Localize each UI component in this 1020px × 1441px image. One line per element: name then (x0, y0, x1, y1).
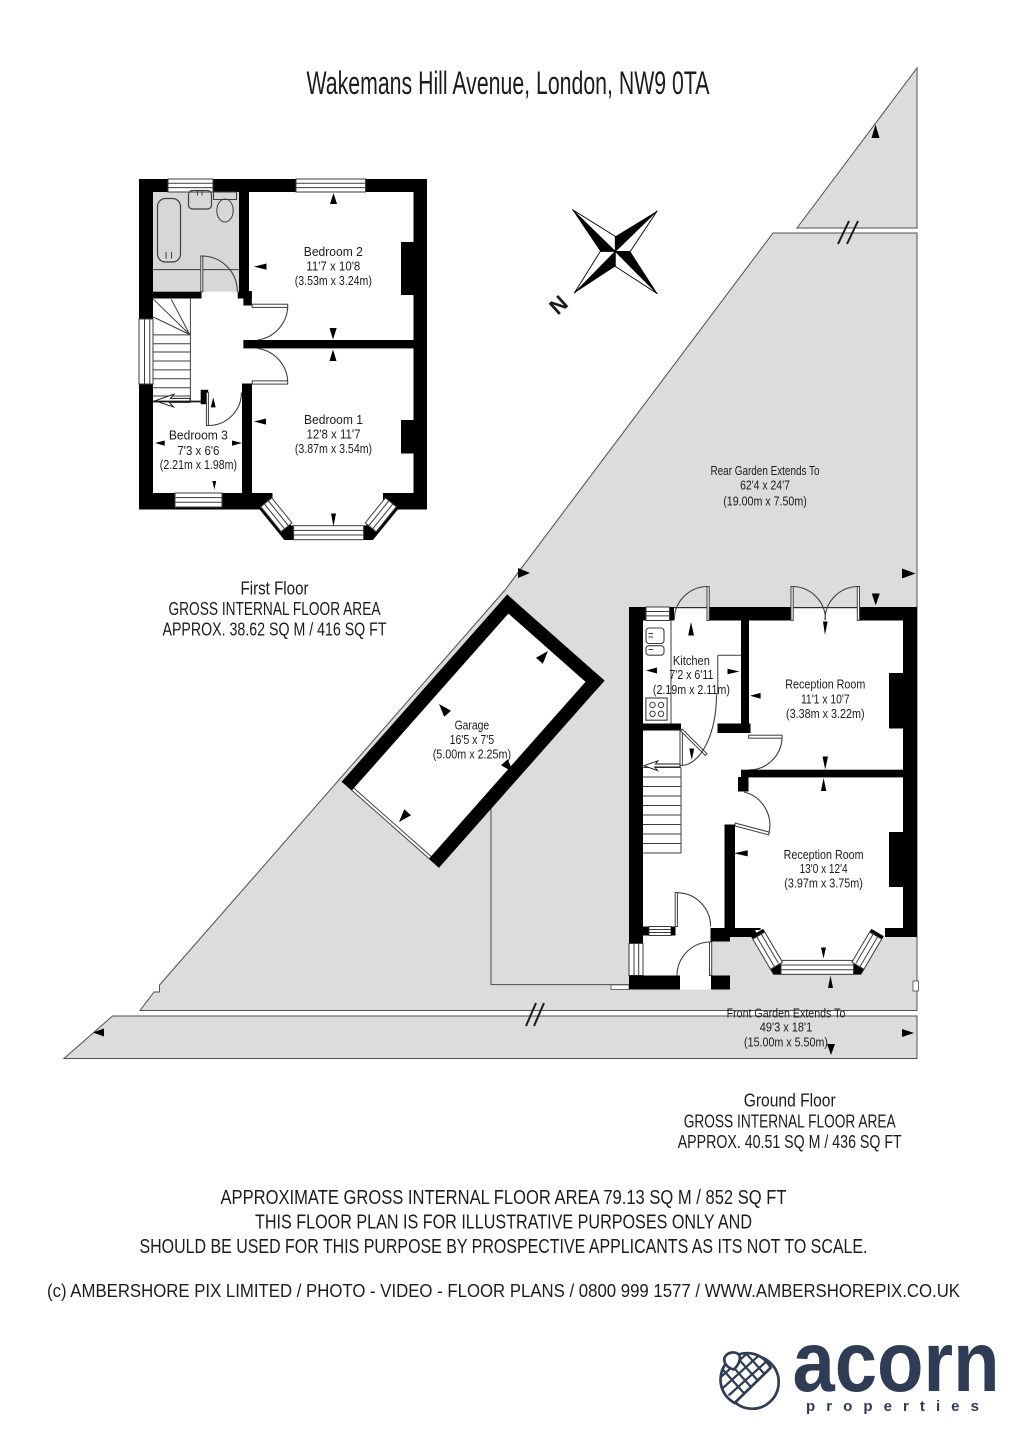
svg-text:7'2 x 6'11: 7'2 x 6'11 (669, 667, 713, 682)
svg-text:Garage: Garage (455, 718, 490, 733)
svg-text:(c) AMBERSHORE PIX LIMITED / P: (c) AMBERSHORE PIX LIMITED / PHOTO - VID… (47, 1281, 960, 1301)
svg-text:THIS FLOOR PLAN IS FOR ILLUSTR: THIS FLOOR PLAN IS FOR ILLUSTRATIVE PURP… (255, 1212, 752, 1234)
svg-text:Reception Room: Reception Room (785, 677, 865, 692)
svg-text:(3.97m x 3.75m): (3.97m x 3.75m) (784, 875, 863, 890)
svg-text:49'3 x 18'1: 49'3 x 18'1 (760, 1020, 813, 1035)
svg-text:7'3 x 6'6: 7'3 x 6'6 (177, 443, 219, 458)
svg-text:12'8 x 11'7: 12'8 x 11'7 (307, 427, 361, 442)
svg-text:(2.21m x 1.98m): (2.21m x 1.98m) (160, 457, 237, 472)
svg-text:(15.00m x 5.50m): (15.00m x 5.50m) (744, 1034, 828, 1049)
svg-text:62'4 x 24'7: 62'4 x 24'7 (740, 478, 790, 493)
svg-text:(3.53m x 3.24m): (3.53m x 3.24m) (295, 273, 372, 288)
svg-text:SHOULD BE USED FOR THIS PURPOS: SHOULD BE USED FOR THIS PURPOSE BY PROSP… (140, 1236, 868, 1258)
svg-text:(3.38m x 3.22m): (3.38m x 3.22m) (786, 706, 865, 721)
svg-text:(19.00m x 7.50m): (19.00m x 7.50m) (723, 493, 807, 508)
svg-text:(3.87m x 3.54m): (3.87m x 3.54m) (295, 441, 372, 456)
svg-text:13'0 x 12'4: 13'0 x 12'4 (800, 861, 848, 876)
svg-text:First Floor: First Floor (241, 578, 309, 599)
svg-text:APPROXIMATE GROSS INTERNAL FLO: APPROXIMATE GROSS INTERNAL FLOOR AREA 79… (221, 1187, 787, 1209)
svg-text:Front Garden Extends To: Front Garden Extends To (727, 1005, 846, 1020)
svg-text:(2.19m x 2.11m): (2.19m x 2.11m) (653, 682, 730, 697)
svg-text:11'7 x 10'8: 11'7 x 10'8 (306, 258, 360, 273)
svg-text:Ground Floor: Ground Floor (744, 1090, 836, 1111)
svg-text:GROSS INTERNAL FLOOR AREA: GROSS INTERNAL FLOOR AREA (684, 1111, 896, 1132)
svg-text:GROSS INTERNAL FLOOR AREA: GROSS INTERNAL FLOOR AREA (169, 598, 381, 619)
svg-text:Rear Garden Extends To: Rear Garden Extends To (711, 463, 820, 478)
svg-text:APPROX. 40.51 SQ M / 436 SQ FT: APPROX. 40.51 SQ M / 436 SQ FT (678, 1131, 902, 1152)
svg-text:Reception Room: Reception Room (784, 847, 864, 862)
svg-text:APPROX. 38.62 SQ M / 416 SQ FT: APPROX. 38.62 SQ M / 416 SQ FT (163, 618, 387, 639)
svg-text:acorn: acorn (793, 1315, 1000, 1410)
svg-text:properties: properties (806, 1398, 990, 1415)
svg-text:(5.00m x 2.25m): (5.00m x 2.25m) (433, 746, 511, 761)
svg-text:16'5 x 7'5: 16'5 x 7'5 (450, 732, 495, 747)
svg-text:Wakemans Hill Avenue, London,: Wakemans Hill Avenue, London, NW9 0TA (307, 65, 710, 101)
svg-text:Bedroom 2: Bedroom 2 (304, 244, 363, 259)
svg-text:Bedroom 1: Bedroom 1 (304, 412, 363, 427)
svg-text:11'1 x 10'7: 11'1 x 10'7 (801, 691, 850, 706)
svg-text:Bedroom 3: Bedroom 3 (169, 427, 228, 442)
